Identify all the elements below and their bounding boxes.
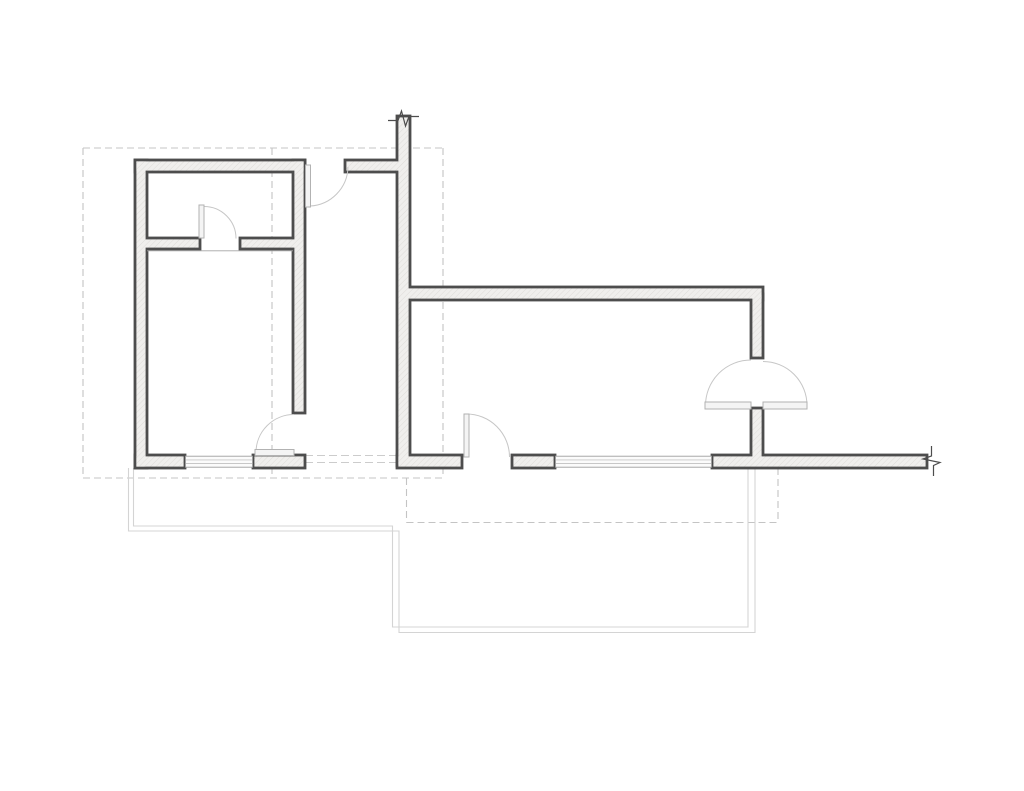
partition-wall-left [142, 239, 198, 247]
entry-top-door-leaf [306, 165, 311, 207]
right-wall-upper [752, 295, 761, 356]
hall-door-leaf [464, 414, 469, 457]
window-right [556, 456, 712, 467]
bottom-wall-4 [513, 456, 553, 466]
left-block-right-wall [294, 161, 303, 411]
bottom-wall-1 [136, 456, 183, 466]
partition-door-leaf [199, 205, 204, 238]
floor-plan-canvas [0, 0, 1024, 791]
corridor-wall [401, 288, 761, 298]
window-left [186, 456, 253, 467]
bottom-wall-2 [254, 456, 303, 466]
double-door-leaf-left [705, 402, 751, 409]
bottom-wall-5 [713, 456, 925, 466]
partition-wall-right [241, 239, 297, 247]
top-stub-wall [346, 161, 401, 170]
double-door-leaf-right [763, 402, 807, 409]
bedroom-door-leaf [255, 450, 294, 456]
bottom-wall-3 [398, 456, 460, 466]
background [0, 0, 1024, 791]
left-block-top-wall [136, 161, 303, 170]
floor-plan [0, 0, 1024, 791]
right-wall-lower [752, 409, 761, 456]
left-block-left-wall [136, 161, 145, 466]
